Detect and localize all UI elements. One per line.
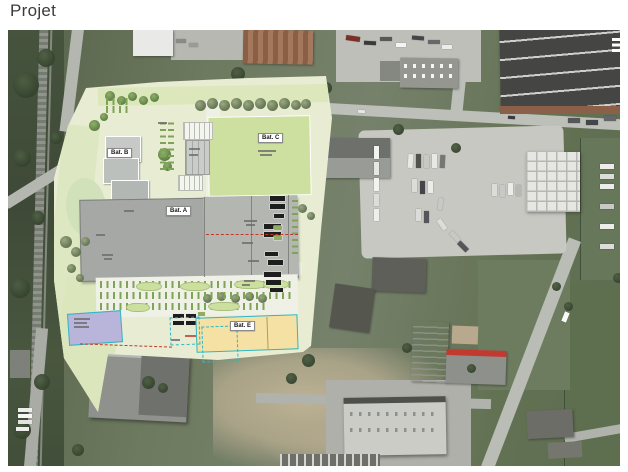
warehouse-dark-top-right [499,30,620,109]
tree [50,132,62,144]
tree [71,247,81,257]
vehicle [424,155,429,168]
bat-e-label: Bat. E [230,321,255,331]
tree [81,237,90,246]
tree [613,273,620,283]
vehicle [442,45,452,49]
tree [89,120,100,131]
tree [67,264,76,273]
green-hatch-column [160,122,166,170]
vehicle [604,116,616,121]
building-red-roof [445,349,506,385]
text-mark [96,234,105,236]
text-mark [74,326,89,328]
bat-a-seam-1 [204,197,205,277]
vehicle [374,178,379,191]
bat-a-seam-2 [251,196,252,275]
vehicle [432,154,437,168]
vehicle [600,184,614,189]
bat-c-label: Bat. C [258,133,283,143]
building-rust-roof-top [243,30,314,65]
annotation-chip [274,214,284,218]
annotation-chip [198,312,205,316]
text-mark [102,254,113,256]
slide: Projet [0,0,628,472]
vehicle [396,43,406,47]
building-strip-bottom-edge [280,454,380,466]
text-mark [158,122,167,124]
tree [402,343,412,353]
vehicle [18,414,32,418]
annotation-chip [274,226,282,230]
vehicle [500,185,505,197]
tree [10,278,30,298]
vehicle [600,204,614,209]
bat-a-label: Bat. A [166,206,191,216]
building-shed-top-mid [380,61,400,81]
parking-row [106,98,132,105]
building-small-dark-br-1 [526,409,573,439]
text-mark [74,322,87,324]
text-mark [260,154,272,156]
aerial-photo: Bat. C Bat. B Bat. A [8,30,620,466]
vehicle [416,209,421,221]
building-large-light-windows-2 [350,428,440,432]
vehicle [600,164,614,169]
tree [255,98,266,109]
tree [100,113,108,121]
vehicle [358,110,365,113]
green-hatch-column [292,198,298,254]
parking-island [208,302,240,311]
tree [279,98,290,109]
tree [158,383,168,393]
vehicle [508,183,513,195]
building-white-top [133,30,173,56]
tree [142,376,155,389]
tree [219,100,230,111]
text-mark [189,148,200,150]
tree [298,204,307,213]
tree [60,236,72,248]
tree [302,354,315,367]
vehicle [440,155,446,168]
building-gray-dotted-windows-2 [404,74,454,78]
building-silver-ridged [411,321,449,382]
bat-c-field [207,115,311,197]
text-mark [104,258,112,260]
green-hatch-column [168,122,174,170]
building-small-left-bottom [10,350,30,378]
building-gray-dotted [400,57,459,88]
vehicle [600,244,614,249]
text-mark [124,210,134,212]
tree [76,274,84,282]
vehicle [189,43,198,47]
vehicle [176,39,186,43]
bat-b-label: Bat. B [107,148,132,158]
tree [231,98,242,109]
annotation-chip [270,288,283,292]
vehicle [374,162,379,175]
tree [13,149,31,167]
vehicle [374,146,379,159]
vehicle [16,427,29,431]
vehicle [424,211,429,223]
vehicle [18,408,32,412]
vehicle [428,181,433,193]
tree [195,100,206,111]
pavement-top-mid [171,30,246,60]
edge-mark [612,38,620,52]
vehicle [408,154,414,168]
tree [291,100,301,110]
building-dark-long-2 [329,283,375,332]
tree [31,211,45,225]
vehicle [416,154,421,168]
vehicle [516,185,521,196]
building-white-grid [526,152,580,212]
text-mark [258,150,276,152]
vehicle [374,209,379,221]
tree [72,444,84,456]
tree [467,364,476,373]
grass-field-right-top [580,138,620,280]
central-building [185,140,210,175]
annotation-chip [265,252,278,256]
building-dark-long-1 [371,257,426,293]
text-mark [74,318,90,320]
annotation-chip [270,204,285,209]
building-small-dark-br-2 [548,441,583,459]
tree [37,49,55,67]
tree [307,212,315,220]
tree [564,302,573,311]
annotation-chip [270,196,285,201]
vehicle [364,41,376,46]
vehicle [380,37,392,41]
central-parking-strip-bottom [178,175,203,191]
vehicle [492,184,497,196]
text-mark [246,224,255,226]
bat-a-red-dashed-line [206,234,298,235]
building-large-light-windows-1 [350,412,440,416]
dashed-annotation-rect-2 [170,316,201,345]
parking-island [126,303,150,312]
building-gray-dotted-windows [404,64,454,68]
tree [243,100,254,111]
central-parking-strip-top [183,122,213,140]
annotation-chip [274,236,282,240]
vehicle [586,120,598,125]
warehouse-mid-gray [325,138,390,178]
tree [301,99,311,109]
tree [13,72,39,98]
tree [150,93,159,102]
tree [207,98,218,109]
parking-island [136,282,162,291]
vehicle [568,118,580,123]
parking-row [106,106,132,113]
tree [267,100,278,111]
text-mark [244,220,257,222]
vehicle [428,40,440,44]
building-tan-shed [452,326,479,345]
building-large-light-bottom [344,396,447,456]
vehicle [508,116,515,119]
tree [552,282,561,291]
tree [139,96,148,105]
tree [451,143,461,153]
vehicle [374,194,379,206]
vehicle [420,181,425,194]
text-mark [242,284,250,286]
text-mark [189,154,198,156]
annotation-chip [264,272,281,277]
text-mark [242,242,253,244]
bat-d-emprise-rect [67,310,123,346]
parking-island [180,282,210,291]
text-mark [244,280,255,282]
parking-row [100,292,293,299]
annotation-chip [266,280,281,285]
tree [34,374,50,390]
warehouse-dark-dock-strip [500,106,620,114]
annotation-chip [268,260,283,265]
text-mark [248,260,259,262]
vehicle [600,224,614,229]
vehicle [18,420,32,424]
vehicle [412,179,417,192]
vehicle [600,174,614,179]
tree [393,124,404,135]
page-title: Projet [10,1,56,21]
tree [286,373,297,384]
